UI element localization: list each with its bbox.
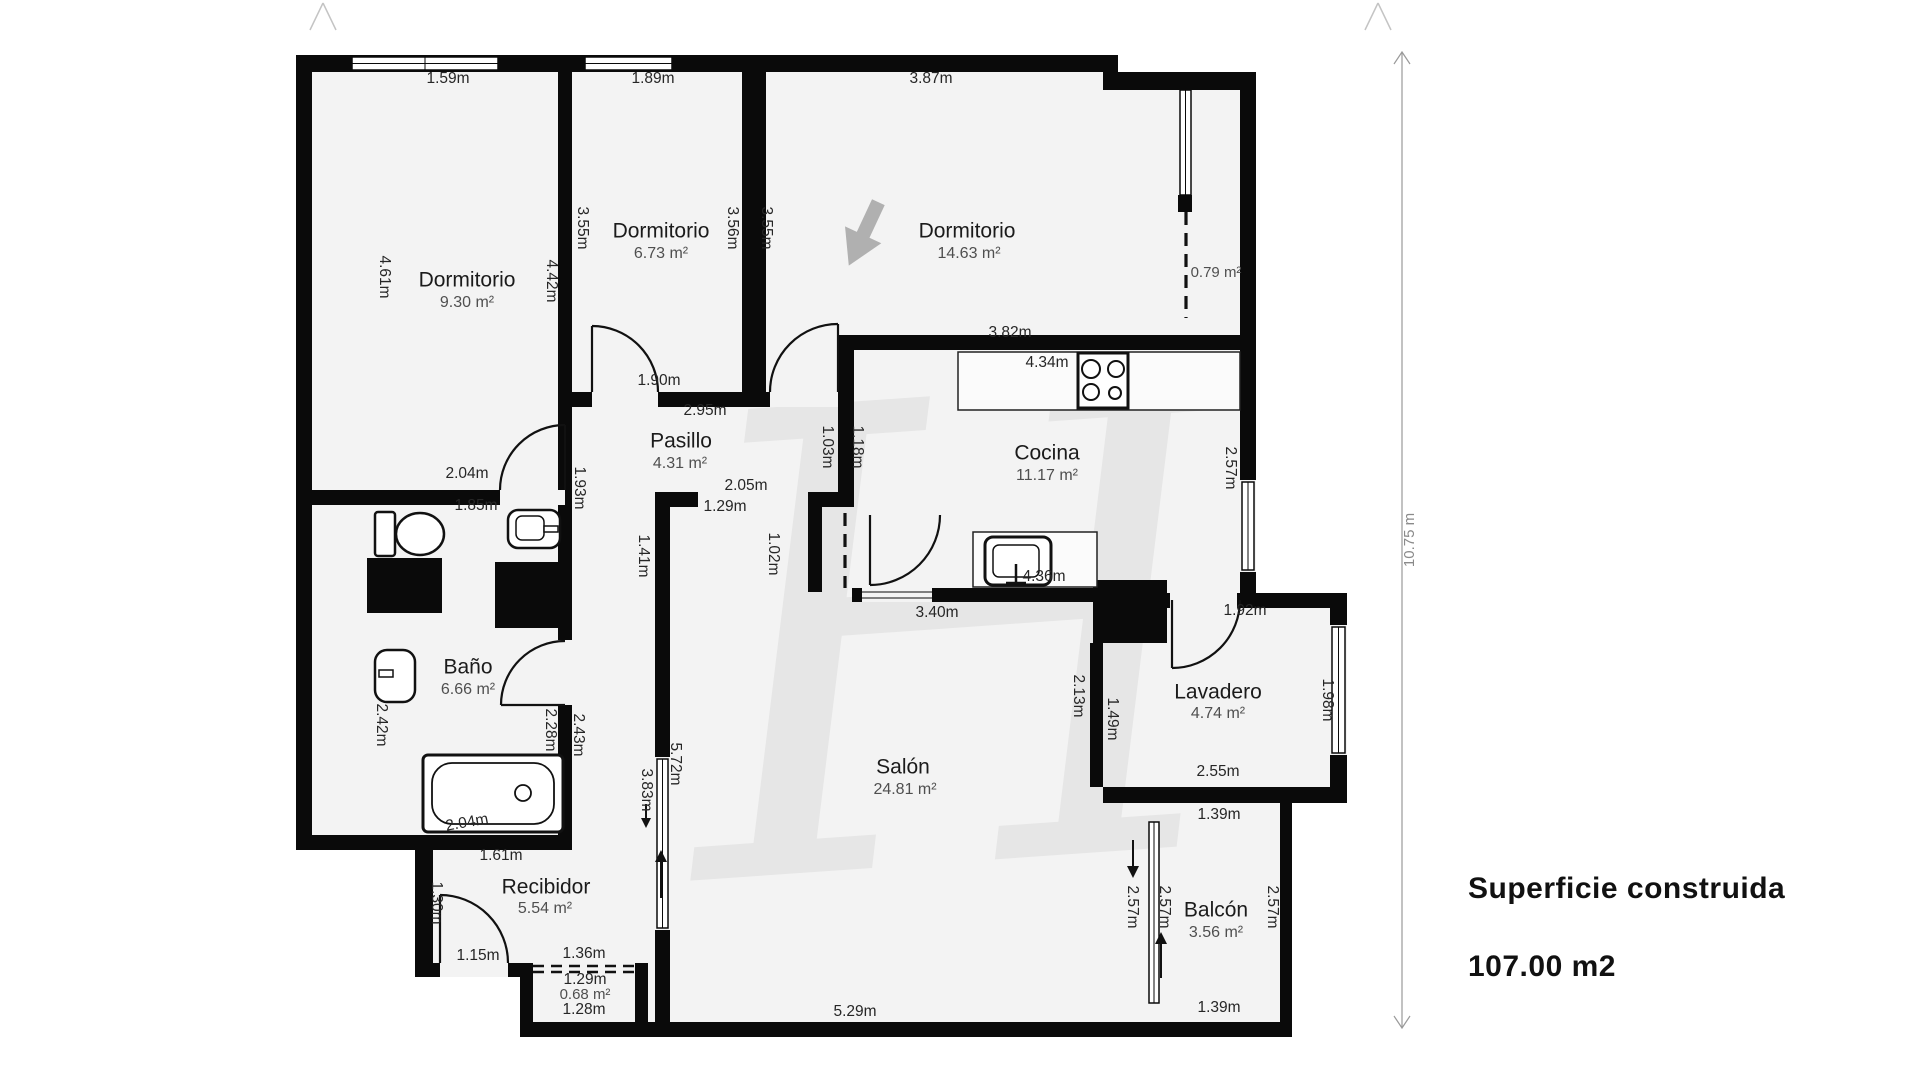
room-name-label: Dormitorio xyxy=(919,220,1016,243)
room-area-label: 14.63 m² xyxy=(937,245,1001,262)
room-name-label: Dormitorio xyxy=(613,220,710,243)
measurement-label: 1.29m xyxy=(563,971,606,988)
room-area-label: 5.54 m² xyxy=(518,900,573,917)
measurement-label: 2.42m xyxy=(373,703,390,746)
measurement-label: 1.02m xyxy=(765,532,782,575)
measurement-label: 1.85m xyxy=(454,497,497,514)
bathroom-sink-icon xyxy=(508,510,560,548)
measurement-label: 4.36m xyxy=(1022,568,1065,585)
measurement-label: 4.61m xyxy=(376,255,393,298)
area-label: 0.79 m² xyxy=(1191,264,1242,281)
measurement-label: 1.18m xyxy=(849,425,866,468)
measurement-label: 4.34m xyxy=(1025,354,1068,371)
room-area-label: 9.30 m² xyxy=(440,294,495,311)
window xyxy=(585,57,672,70)
measurement-label: 1.36m xyxy=(562,945,605,962)
measurement-label: 5.72m xyxy=(667,742,684,785)
bidet-icon xyxy=(375,650,415,702)
measurement-label: 1.39m xyxy=(1197,806,1240,823)
measurement-label: 1.89m xyxy=(631,70,674,87)
room-name-label: Recibidor xyxy=(502,876,591,899)
measurement-label: 3.82m xyxy=(988,324,1031,341)
window xyxy=(1180,90,1191,195)
room-name-label: Salón xyxy=(876,756,930,779)
measurement-label: 3.55m xyxy=(574,206,591,249)
measurement-label: 1.98m xyxy=(1319,678,1336,721)
room-name-label: Baño xyxy=(443,656,492,679)
measurement-label: 1.28m xyxy=(562,1001,605,1018)
dimension-line-label: 10.75 m xyxy=(1401,513,1418,567)
measurement-label: 3.40m xyxy=(915,604,958,621)
summary-title: Superficie construida xyxy=(1468,872,1785,906)
room-name-label: Balcón xyxy=(1184,899,1248,922)
measurement-label: 2.57m xyxy=(1156,885,1173,928)
room-area-label: 11.17 m² xyxy=(1016,467,1079,484)
measurement-label: 1.29m xyxy=(703,498,746,515)
measurement-label: 1.15m xyxy=(456,947,499,964)
room-name-label: Cocina xyxy=(1014,442,1080,465)
room-area-label: 24.81 m² xyxy=(873,781,937,798)
top-dimension-arrow xyxy=(310,3,336,30)
room-area-label: 4.31 m² xyxy=(653,455,708,472)
window xyxy=(1242,482,1254,570)
top-dimension-arrow xyxy=(1365,3,1391,30)
measurement-label: 2.05m xyxy=(724,477,767,494)
room-area-label: 4.74 m² xyxy=(1191,705,1246,722)
measurement-label: 4.42m xyxy=(543,259,560,302)
measurement-label: 2.43m xyxy=(570,713,587,756)
floorplan-page: H xyxy=(0,0,1920,1080)
measurement-label: 1.03m xyxy=(819,425,836,468)
measurement-label: 2.57m xyxy=(1264,885,1281,928)
measurement-label: 1.59m xyxy=(426,70,469,87)
toilet-icon xyxy=(375,512,444,556)
measurement-label: 1.39m xyxy=(1197,999,1240,1016)
measurement-label: 5.29m xyxy=(833,1003,876,1020)
measurement-label: 2.95m xyxy=(683,402,726,419)
shaft-block xyxy=(495,562,572,628)
corner-pillar xyxy=(1093,580,1167,643)
measurement-label: 2.28m xyxy=(542,708,559,751)
floorplan-svg: H xyxy=(0,0,1920,1080)
measurement-label: 1.30m xyxy=(428,881,445,924)
measurement-label: 1.41m xyxy=(635,534,652,577)
measurement-label: 1.61m xyxy=(479,847,522,864)
measurement-label: 1.93m xyxy=(571,466,588,509)
stove-icon xyxy=(1078,353,1128,408)
measurement-label: 2.55m xyxy=(1196,763,1239,780)
room-name-label: Pasillo xyxy=(650,430,712,453)
room-area-label: 6.66 m² xyxy=(441,681,496,698)
measurement-label: 3.55m xyxy=(758,206,775,249)
measurement-label: 3.83m xyxy=(638,768,655,811)
shaft-block xyxy=(367,558,442,613)
measurement-label: 2.04m xyxy=(445,465,488,482)
measurement-label: 1.92m xyxy=(1223,602,1266,619)
room-area-label: 6.73 m² xyxy=(634,245,689,262)
measurement-label: 1.49m xyxy=(1104,697,1121,740)
measurement-label: 2.57m xyxy=(1124,885,1141,928)
room-name-label: Lavadero xyxy=(1174,681,1262,704)
measurement-label: 3.56m xyxy=(724,206,741,249)
measurement-label: 2.13m xyxy=(1070,674,1087,717)
summary-value: 107.00 m2 xyxy=(1468,950,1616,984)
measurement-label: 2.57m xyxy=(1222,446,1239,489)
measurement-label: 3.87m xyxy=(909,70,952,87)
measurement-label: 1.90m xyxy=(637,372,680,389)
window xyxy=(657,759,668,928)
room-name-label: Dormitorio xyxy=(419,269,516,292)
room-area-label: 3.56 m² xyxy=(1189,924,1244,941)
window xyxy=(352,57,498,70)
